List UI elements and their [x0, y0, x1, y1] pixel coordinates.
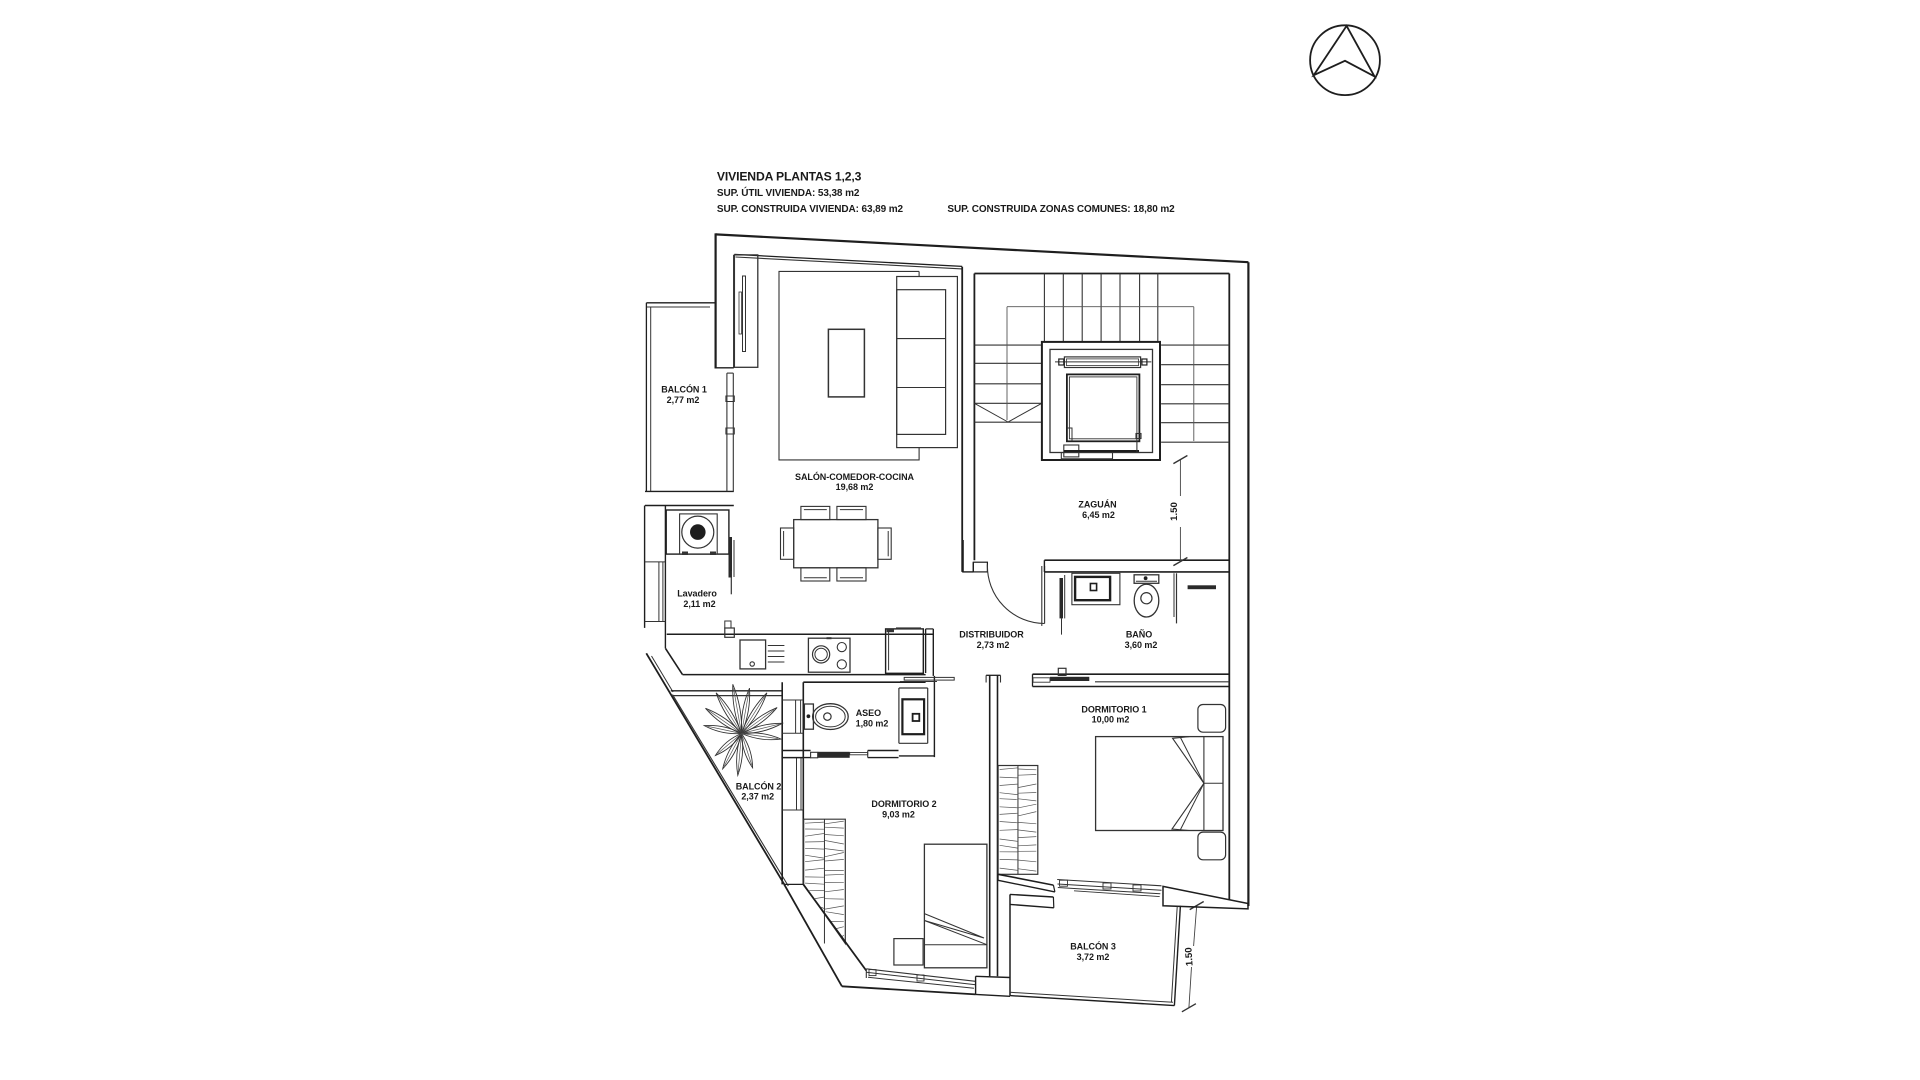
- svg-text:VIVIENDA PLANTAS 1,2,3: VIVIENDA PLANTAS 1,2,3: [717, 169, 862, 183]
- svg-text:1,80 m2: 1,80 m2: [856, 718, 889, 728]
- svg-text:2,77 m2: 2,77 m2: [667, 395, 700, 405]
- svg-text:2,73 m2: 2,73 m2: [977, 640, 1010, 650]
- svg-text:SALÓN-COMEDOR-COCINA: SALÓN-COMEDOR-COCINA: [795, 471, 915, 482]
- svg-text:1.50: 1.50: [1183, 947, 1195, 966]
- svg-text:3,72 m2: 3,72 m2: [1077, 952, 1110, 962]
- svg-text:SUP. ÚTIL VIVIENDA: 53,38 m2: SUP. ÚTIL VIVIENDA: 53,38 m2: [717, 186, 860, 199]
- svg-text:BALCÓN 3: BALCÓN 3: [1070, 940, 1116, 951]
- svg-text:DORMITORIO 1: DORMITORIO 1: [1081, 704, 1146, 714]
- svg-text:DORMITORIO 2: DORMITORIO 2: [871, 799, 936, 809]
- svg-text:3,60 m2: 3,60 m2: [1125, 640, 1158, 650]
- svg-text:1.50: 1.50: [1169, 502, 1180, 521]
- svg-text:SUP. CONSTRUIDA VIVIENDA: 63,8: SUP. CONSTRUIDA VIVIENDA: 63,89 m2: [717, 204, 904, 215]
- svg-text:19,68 m2: 19,68 m2: [836, 482, 874, 492]
- svg-text:6,45 m2: 6,45 m2: [1082, 510, 1115, 520]
- svg-text:Lavadero: Lavadero: [677, 589, 717, 599]
- svg-text:BALCÓN 2: BALCÓN 2: [736, 780, 782, 791]
- svg-text:9,03 m2: 9,03 m2: [882, 809, 915, 819]
- svg-text:ASEO: ASEO: [856, 708, 881, 718]
- svg-text:SUP. CONSTRUIDA ZONAS COMUNES:: SUP. CONSTRUIDA ZONAS COMUNES: 18,80 m2: [947, 204, 1175, 215]
- svg-text:10,00 m2: 10,00 m2: [1092, 715, 1130, 725]
- svg-text:2,37 m2: 2,37 m2: [741, 792, 774, 802]
- svg-text:2,11 m2: 2,11 m2: [683, 599, 715, 609]
- svg-text:BAÑO: BAÑO: [1126, 630, 1152, 640]
- svg-text:BALCÓN 1: BALCÓN 1: [661, 384, 707, 395]
- svg-text:ZAGUÁN: ZAGUÁN: [1078, 500, 1116, 510]
- svg-text:DISTRIBUIDOR: DISTRIBUIDOR: [959, 630, 1024, 640]
